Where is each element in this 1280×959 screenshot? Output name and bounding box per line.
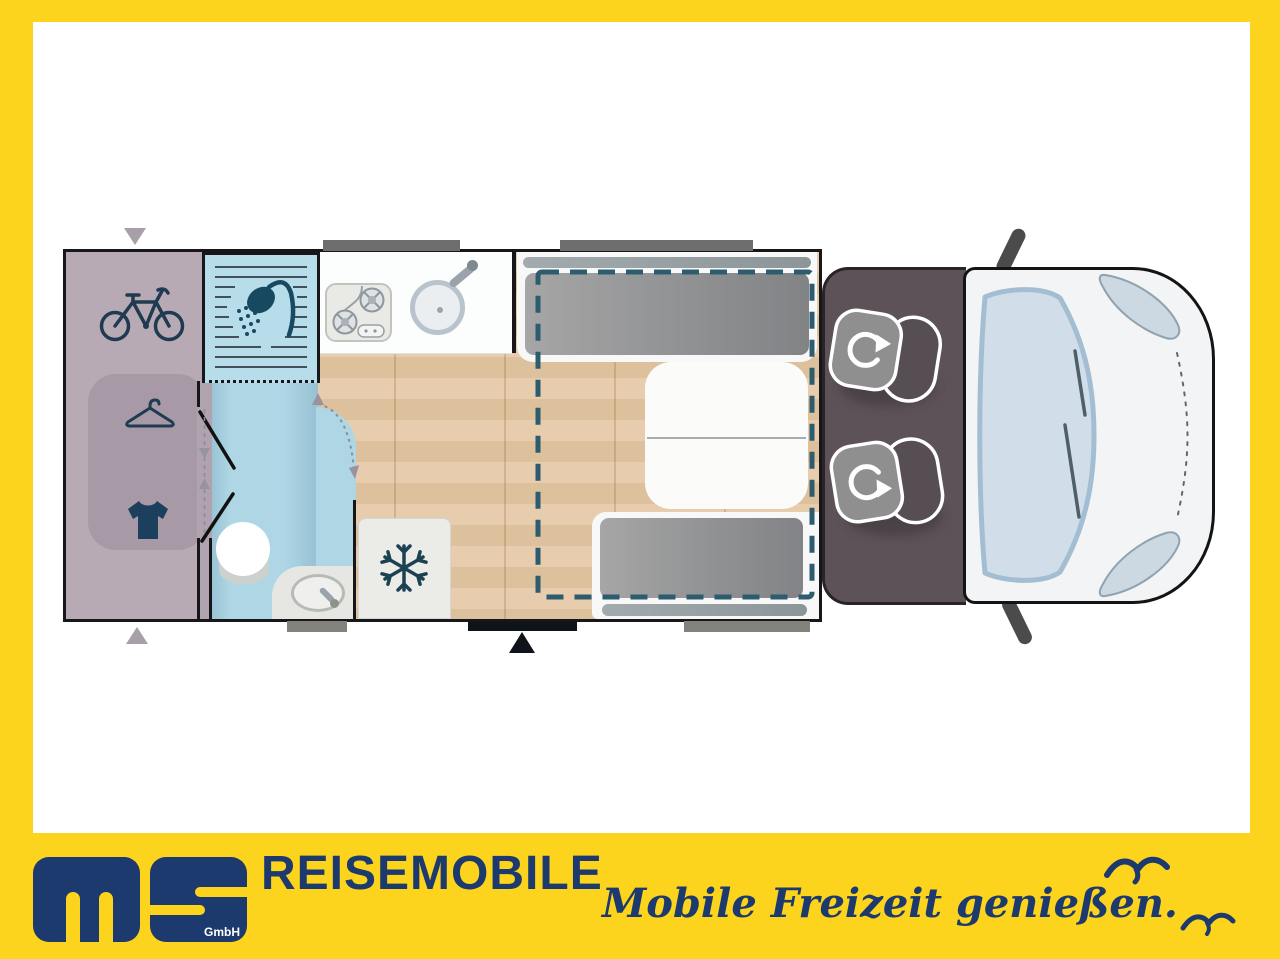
kitchen-wall [512, 252, 516, 353]
logo-s-slot [195, 887, 247, 897]
wall-stub [209, 538, 212, 619]
logo-letter-m [33, 857, 140, 942]
bathroom-wall [353, 500, 356, 619]
logo-letter-s: GmbH [150, 857, 247, 942]
hood-line [1177, 353, 1188, 519]
table-fold-line [647, 437, 806, 439]
swivel-seat-passenger [826, 302, 960, 420]
logo-s-slot [150, 905, 205, 915]
dinette-bench-rear [592, 512, 819, 619]
dinette-bench-front [517, 252, 817, 362]
windshield [980, 290, 1094, 581]
seagull-icon-large [1102, 851, 1172, 889]
advert-canvas: GmbH REISEMOBILE Mobile Freizeit genieße… [0, 0, 1280, 959]
swivel-seat-driver [828, 426, 962, 544]
rear-hatch-arrow-bottom [126, 627, 148, 644]
kitchen-sink-icon [410, 280, 465, 335]
tagline: Mobile Freizeit genießen. [602, 880, 1162, 927]
faucet-knob [467, 260, 478, 271]
bicycle-icon [96, 278, 188, 344]
bench-cushion [600, 518, 803, 598]
headlight-bottom-icon [1100, 532, 1179, 596]
shower-cubicle [202, 252, 320, 383]
sink-drain [437, 307, 443, 313]
toilet-icon [216, 522, 270, 576]
logo-m-slot [99, 892, 113, 942]
bench-cushion [525, 273, 809, 355]
snowflake-icon [377, 541, 431, 595]
seagull-icon-small [1178, 906, 1238, 938]
wordmark: REISEMOBILE [261, 846, 603, 901]
clothes-hanger-icon [124, 397, 176, 429]
refrigerator [358, 518, 451, 619]
bench-sideboard [523, 257, 811, 268]
dinette-window-top [560, 240, 753, 251]
headlight-top-icon [1100, 275, 1179, 339]
frame-top [0, 0, 1280, 22]
frame-left [0, 0, 33, 959]
wall-stub [197, 381, 200, 407]
logo-m-slot [66, 892, 80, 942]
rear-hatch-arrow-top [124, 228, 146, 245]
bench-sideboard [602, 604, 807, 616]
logo-gmbh-label: GmbH [204, 925, 240, 939]
dinette-table [645, 362, 808, 509]
bathroom-window [287, 621, 347, 632]
shower-icon [205, 255, 317, 380]
washbasin-knob [330, 599, 339, 608]
entrance-door-bar [468, 621, 577, 631]
van-front-details [963, 267, 1215, 604]
tshirt-icon [126, 500, 170, 540]
kitchen-window [323, 240, 460, 251]
frame-right [1250, 0, 1280, 959]
wall-stub [197, 538, 200, 619]
dinette-window-bottom [684, 621, 810, 632]
washbasin-counter [272, 566, 353, 619]
floorplan-living-area [63, 249, 822, 622]
stove-icon [325, 283, 392, 342]
entrance-arrow [509, 632, 535, 653]
